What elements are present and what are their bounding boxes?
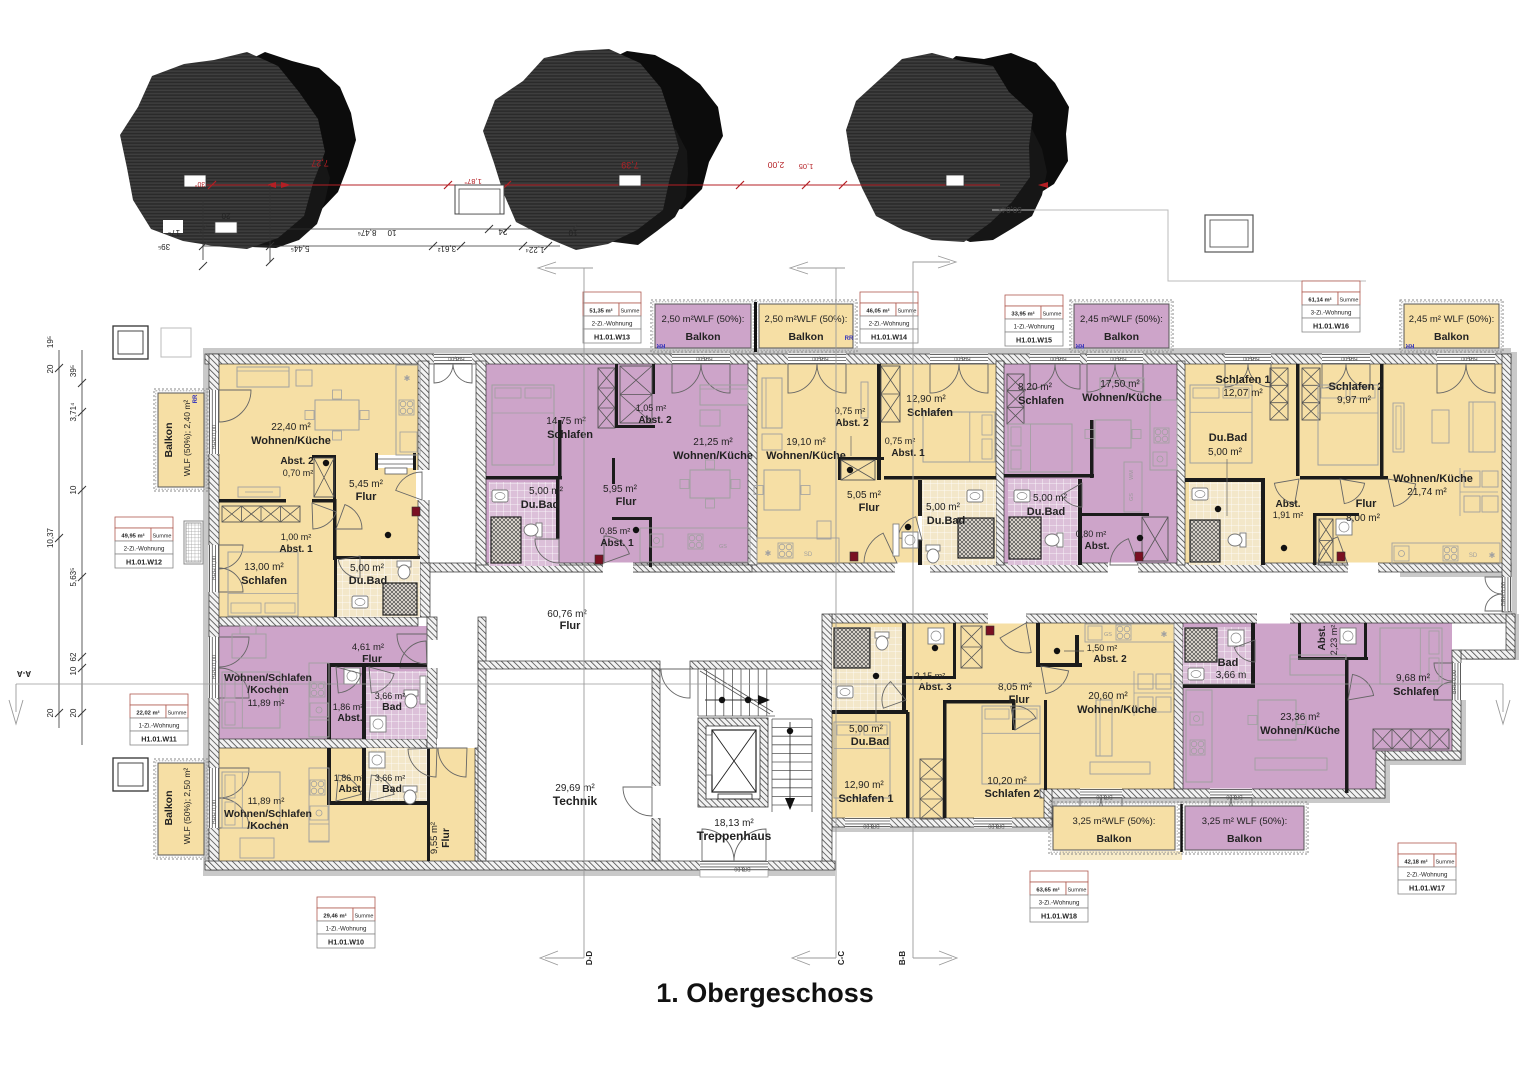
svg-text:RR: RR — [845, 336, 854, 342]
svg-text:BRH 0,00: BRH 0,00 — [1452, 670, 1458, 694]
svg-text:23,36 m²: 23,36 m² — [1280, 712, 1320, 723]
svg-text:1-Zi.-Wohnung: 1-Zi.-Wohnung — [139, 723, 180, 730]
svg-text:20: 20 — [69, 708, 78, 717]
svg-text:9,68 m²: 9,68 m² — [1396, 673, 1431, 684]
svg-text:Wohnen/Schlafen: Wohnen/Schlafen — [224, 808, 312, 820]
svg-text:Wohnen/Schlafen: Wohnen/Schlafen — [224, 672, 312, 684]
svg-text:BRH 0,00: BRH 0,00 — [212, 556, 218, 580]
svg-text:Abst.: Abst. — [1317, 625, 1328, 650]
svg-text:11,89 m²: 11,89 m² — [248, 698, 285, 709]
svg-text:21,74 m²: 21,74 m² — [1407, 487, 1447, 498]
svg-text:Balkon: Balkon — [1227, 833, 1262, 845]
svg-text:Flur: Flur — [859, 502, 880, 514]
svg-text:1. Obergeschoss: 1. Obergeschoss — [656, 978, 874, 1008]
svg-text:3,61²: 3,61² — [438, 244, 457, 253]
svg-text:1,00 m²: 1,00 m² — [281, 532, 312, 542]
svg-text:2,50 m²WLF (50%):: 2,50 m²WLF (50%): — [662, 314, 745, 325]
svg-text:1,86 m²: 1,86 m² — [334, 773, 365, 783]
svg-text:Wohnen/Küche: Wohnen/Küche — [1393, 473, 1473, 485]
svg-text:H1.01.W17: H1.01.W17 — [1409, 884, 1445, 893]
svg-text:H1.01.W11: H1.01.W11 — [141, 735, 177, 744]
svg-text:1,50 m²: 1,50 m² — [1087, 643, 1118, 653]
svg-text:3,25 m² WLF (50%):: 3,25 m² WLF (50%): — [1202, 816, 1288, 827]
svg-text:0,00: 0,00 — [812, 355, 823, 361]
svg-text:BRH 0,00: BRH 0,00 — [212, 655, 218, 679]
svg-text:BRH 0,00: BRH 0,00 — [212, 425, 218, 449]
svg-text:5,00 m²: 5,00 m² — [849, 724, 884, 735]
svg-text:Abst. 1: Abst. 1 — [891, 448, 925, 459]
svg-text:Balkon: Balkon — [1096, 833, 1131, 845]
svg-text:Abst.: Abst. — [338, 713, 363, 724]
svg-text:2,45 m² WLF (50%):: 2,45 m² WLF (50%): — [1409, 314, 1495, 325]
svg-text:3,66 m²: 3,66 m² — [375, 773, 406, 783]
svg-text:BRH 0,00: BRH 0,00 — [212, 800, 218, 824]
svg-text:Bad: Bad — [382, 701, 402, 713]
svg-text:0,00: 0,00 — [1050, 355, 1061, 361]
svg-text:RR: RR — [1075, 342, 1084, 348]
svg-text:3-Zi.-Wohnung: 3-Zi.-Wohnung — [1039, 900, 1080, 907]
svg-text:29,46 m²: 29,46 m² — [323, 913, 346, 920]
svg-text:0,00: 0,00 — [988, 823, 999, 829]
svg-text:Flur: Flur — [362, 653, 382, 665]
svg-text:1,91 m²: 1,91 m² — [1273, 510, 1304, 520]
svg-text:✱: ✱ — [1161, 630, 1168, 639]
svg-text:0,70 m²: 0,70 m² — [283, 468, 314, 478]
svg-text:Abst. 2: Abst. 2 — [835, 418, 869, 429]
svg-text:Summe: Summe — [1436, 860, 1455, 866]
svg-text:10: 10 — [387, 228, 396, 237]
svg-text:20: 20 — [46, 364, 55, 373]
svg-text:9,97 m²: 9,97 m² — [1337, 395, 1372, 406]
svg-text:39⁵: 39⁵ — [158, 242, 170, 251]
svg-text:Schlafen 1: Schlafen 1 — [838, 793, 893, 805]
svg-text:18,13 m²: 18,13 m² — [714, 818, 754, 829]
svg-text:3,66 m²: 3,66 m² — [375, 691, 406, 701]
svg-text:C-C: C-C — [837, 951, 846, 965]
svg-text:BRH 0,00: BRH 0,00 — [1501, 582, 1507, 606]
svg-text:Flur: Flur — [356, 491, 377, 503]
svg-text:49,95 m²: 49,95 m² — [121, 533, 144, 540]
svg-text:5,45 m²: 5,45 m² — [349, 479, 384, 490]
svg-text:22,02 m²: 22,02 m² — [136, 710, 159, 717]
svg-text:3,66 m: 3,66 m — [1216, 670, 1247, 681]
svg-text:WM: WM — [1129, 470, 1135, 480]
svg-text:Flur: Flur — [1009, 694, 1030, 706]
svg-text:Balkon: Balkon — [788, 331, 823, 343]
svg-text:Schlafen: Schlafen — [547, 429, 593, 441]
svg-text:RR: RR — [1405, 342, 1414, 348]
svg-text:2,50 m²WLF (50%):: 2,50 m²WLF (50%): — [765, 314, 848, 325]
svg-text:8,47⁶: 8,47⁶ — [358, 228, 377, 237]
svg-text:✱: ✱ — [404, 374, 411, 383]
svg-text:1,05 m²: 1,05 m² — [636, 403, 667, 413]
svg-text:Summe: Summe — [1043, 312, 1062, 318]
svg-text:Abst. 1: Abst. 1 — [600, 538, 634, 549]
svg-text:12,90 m²: 12,90 m² — [844, 780, 884, 791]
svg-text:0,00: 0,00 — [448, 355, 459, 361]
svg-text:GS: GS — [1104, 632, 1112, 638]
svg-text:Balkon: Balkon — [163, 422, 175, 457]
svg-text:62: 62 — [69, 652, 78, 661]
svg-text:Summe: Summe — [898, 309, 917, 315]
svg-text:39⁵: 39⁵ — [69, 365, 78, 377]
svg-text:RR: RR — [193, 394, 199, 403]
svg-text:H1.01.W10: H1.01.W10 — [328, 938, 364, 947]
svg-text:✱: ✱ — [765, 549, 772, 558]
svg-text:61,14 m²: 61,14 m² — [1308, 297, 1331, 304]
svg-text:GS: GS — [719, 544, 727, 550]
svg-text:Schlafen: Schlafen — [1393, 686, 1439, 698]
svg-text:H1.01.W13: H1.01.W13 — [594, 333, 630, 342]
svg-text:Abst. 2: Abst. 2 — [638, 415, 672, 426]
svg-text:D-D: D-D — [585, 951, 594, 965]
svg-text:Wohnen/Küche: Wohnen/Küche — [673, 450, 753, 462]
svg-text:5,00 m²: 5,00 m² — [1033, 493, 1068, 504]
svg-text:Balkon: Balkon — [685, 331, 720, 343]
svg-text:Summe: Summe — [355, 914, 374, 920]
svg-text:10: 10 — [568, 228, 577, 237]
svg-text:0,80 m²: 0,80 m² — [1076, 529, 1107, 539]
svg-text:1,22⁴: 1,22⁴ — [525, 245, 545, 254]
svg-text:2,00: 2,00 — [767, 160, 784, 170]
svg-text:Schlafen 2: Schlafen 2 — [984, 788, 1039, 800]
svg-text:Wohnen/Küche: Wohnen/Küche — [1260, 725, 1340, 737]
svg-text:/Kochen: /Kochen — [247, 684, 288, 696]
svg-text:0,00: 0,00 — [734, 866, 745, 872]
svg-text:17⁵: 17⁵ — [168, 228, 180, 237]
svg-text:SD: SD — [1469, 553, 1478, 559]
svg-text:Balkon: Balkon — [163, 790, 175, 825]
svg-text:H1.01.W18: H1.01.W18 — [1041, 912, 1077, 921]
svg-text:5,95 m²: 5,95 m² — [603, 484, 638, 495]
svg-text:5,63⁵: 5,63⁵ — [69, 568, 78, 587]
svg-text:H1.01.W16: H1.01.W16 — [1313, 322, 1349, 331]
svg-text:20: 20 — [221, 211, 230, 220]
svg-text:9,55 m²: 9,55 m² — [429, 822, 440, 854]
svg-text:0,00: 0,00 — [1096, 794, 1107, 800]
svg-text:22,40 m²: 22,40 m² — [271, 422, 311, 433]
svg-text:✱: ✱ — [1489, 551, 1496, 560]
svg-text:0,00: 0,00 — [1461, 355, 1472, 361]
svg-text:SD: SD — [804, 552, 813, 558]
svg-text:2,23 m²: 2,23 m² — [1329, 625, 1339, 656]
svg-text:Summe: Summe — [621, 309, 640, 315]
svg-text:0,75 m²: 0,75 m² — [885, 436, 916, 446]
svg-text:Wohnen/Küche: Wohnen/Küche — [1082, 392, 1162, 404]
svg-text:2-Zi.-Wohnung: 2-Zi.-Wohnung — [1407, 872, 1448, 879]
svg-text:10: 10 — [69, 485, 78, 494]
svg-text:11,89 m²: 11,89 m² — [248, 796, 285, 807]
svg-text:Du.Bad: Du.Bad — [1209, 432, 1248, 444]
svg-text:7,39: 7,39 — [621, 160, 639, 170]
svg-text:30°: 30° — [195, 180, 206, 188]
svg-text:3-Zi.-Wohnung: 3-Zi.-Wohnung — [1311, 310, 1352, 317]
svg-text:Abst.: Abst. — [1085, 541, 1110, 552]
svg-text:Flur: Flur — [440, 828, 452, 848]
svg-text:12,07 m²: 12,07 m² — [1223, 388, 1263, 399]
svg-text:29,69 m²: 29,69 m² — [555, 783, 595, 794]
svg-text:60,76 m²: 60,76 m² — [547, 609, 587, 620]
svg-text:42,18 m²: 42,18 m² — [1404, 859, 1427, 866]
svg-text:14,75 m²: 14,75 m² — [546, 416, 586, 427]
svg-text:63,65 m²: 63,65 m² — [1036, 887, 1059, 894]
svg-text:46,05 m²: 46,05 m² — [866, 308, 889, 315]
svg-text:5,44⁵: 5,44⁵ — [291, 244, 310, 253]
svg-text:0,85 m²: 0,85 m² — [600, 526, 631, 536]
svg-text:Technik: Technik — [553, 794, 598, 808]
svg-text:Summe: Summe — [168, 711, 187, 717]
svg-text:8,20 m²: 8,20 m² — [1018, 382, 1053, 393]
svg-text:/Kochen: /Kochen — [247, 820, 288, 832]
svg-text:Summe: Summe — [1340, 298, 1359, 304]
svg-text:WLF (50%); 2,50 m²: WLF (50%); 2,50 m² — [182, 768, 192, 845]
svg-text:0,00: 0,00 — [954, 355, 965, 361]
svg-text:Schlafen: Schlafen — [241, 575, 287, 587]
svg-text:20: 20 — [46, 708, 55, 717]
svg-text:5,00 m²: 5,00 m² — [529, 486, 564, 497]
svg-text:0,00: 0,00 — [1226, 794, 1237, 800]
svg-text:WLF (50%); 2,40 m²: WLF (50%); 2,40 m² — [182, 400, 192, 477]
svg-text:0,75 m²: 0,75 m² — [835, 406, 866, 416]
svg-text:0,00: 0,00 — [696, 355, 707, 361]
svg-text:5,00 m²: 5,00 m² — [350, 563, 385, 574]
svg-text:19,10 m²: 19,10 m² — [786, 437, 826, 448]
svg-text:Bad: Bad — [1218, 657, 1239, 669]
svg-text:Wohnen/Küche: Wohnen/Küche — [766, 450, 846, 462]
svg-text:Abst.: Abst. — [1276, 499, 1301, 510]
svg-text:19⁵: 19⁵ — [46, 336, 55, 348]
svg-text:33,95 m²: 33,95 m² — [1011, 311, 1034, 318]
svg-text:12,90 m²: 12,90 m² — [906, 394, 946, 405]
svg-text:1,05: 1,05 — [799, 162, 814, 171]
svg-text:0,00: 0,00 — [1341, 355, 1352, 361]
svg-text:2,15 m²: 2,15 m² — [915, 671, 946, 681]
svg-text:Balkon: Balkon — [1104, 331, 1139, 343]
svg-text:Abst. 2: Abst. 2 — [1093, 654, 1127, 665]
svg-text:Du.Bad: Du.Bad — [349, 575, 388, 587]
svg-text:3,71⁴: 3,71⁴ — [69, 402, 78, 422]
svg-text:Du.Bad: Du.Bad — [521, 499, 560, 511]
svg-text:8,00 m²: 8,00 m² — [1346, 513, 1381, 524]
svg-text:51,35 m²: 51,35 m² — [589, 308, 612, 315]
svg-text:Summe: Summe — [1068, 888, 1087, 894]
svg-text:2,45 m²WLF (50%):: 2,45 m²WLF (50%): — [1080, 314, 1163, 325]
svg-text:Bad: Bad — [382, 783, 402, 795]
svg-text:Treppenhaus: Treppenhaus — [697, 829, 772, 843]
svg-text:1-Zi.-Wohnung: 1-Zi.-Wohnung — [326, 926, 367, 933]
svg-text:Schlafen: Schlafen — [907, 407, 953, 419]
svg-text:Flur: Flur — [560, 620, 581, 632]
svg-text:GS: GS — [1129, 493, 1135, 501]
svg-text:1,86 m²: 1,86 m² — [333, 702, 364, 712]
svg-text:Schlafen 1: Schlafen 1 — [1215, 374, 1270, 386]
svg-text:H1.01.W15: H1.01.W15 — [1016, 336, 1052, 345]
svg-text:Abst. 1: Abst. 1 — [279, 544, 313, 555]
svg-text:50,04⁴: 50,04⁴ — [998, 205, 1022, 214]
svg-text:Schlafen: Schlafen — [1018, 395, 1064, 407]
svg-text:13,00 m²: 13,00 m² — [244, 562, 284, 573]
svg-text:0,00: 0,00 — [1243, 355, 1254, 361]
svg-text:0,00: 0,00 — [863, 823, 874, 829]
svg-text:10,37: 10,37 — [46, 527, 55, 548]
svg-text:H1.01.W12: H1.01.W12 — [126, 558, 162, 567]
svg-text:5,05 m²: 5,05 m² — [847, 490, 882, 501]
svg-text:10: 10 — [69, 666, 78, 675]
svg-text:Schlafen 2: Schlafen 2 — [1328, 381, 1383, 393]
svg-text:2-Zi.-Wohnung: 2-Zi.-Wohnung — [124, 546, 165, 553]
svg-text:17,50 m²: 17,50 m² — [1100, 379, 1140, 390]
svg-text:2-Zi.-Wohnung: 2-Zi.-Wohnung — [592, 321, 633, 328]
svg-text:24: 24 — [498, 227, 507, 236]
svg-text:Wohnen/Küche: Wohnen/Küche — [1077, 704, 1157, 716]
svg-text:RR: RR — [656, 342, 665, 348]
svg-text:20,60 m²: 20,60 m² — [1088, 691, 1128, 702]
svg-text:Du.Bad: Du.Bad — [1027, 506, 1066, 518]
svg-text:Abst. 2: Abst. 2 — [280, 456, 314, 467]
svg-text:2-Zi.-Wohnung: 2-Zi.-Wohnung — [869, 321, 910, 328]
svg-text:Flur: Flur — [616, 496, 637, 508]
svg-text:Du.Bad: Du.Bad — [851, 736, 890, 748]
svg-text:A-A: A-A — [17, 669, 31, 678]
svg-text:Balkon: Balkon — [1434, 331, 1469, 343]
svg-text:Du.Bad: Du.Bad — [927, 515, 966, 527]
svg-text:10,20 m²: 10,20 m² — [987, 776, 1027, 787]
svg-text:B-B: B-B — [898, 951, 907, 965]
svg-text:7,27: 7,27 — [311, 158, 329, 168]
svg-text:Flur: Flur — [1356, 498, 1377, 510]
svg-text:H1.01.W14: H1.01.W14 — [871, 333, 907, 342]
svg-text:1-Zi.-Wohnung: 1-Zi.-Wohnung — [1014, 324, 1055, 331]
svg-text:3,25 m²WLF (50%):: 3,25 m²WLF (50%): — [1073, 816, 1156, 827]
svg-text:5,00 m²: 5,00 m² — [1208, 447, 1243, 458]
svg-text:4,61 m²: 4,61 m² — [352, 642, 384, 653]
svg-text:Wohnen/Küche: Wohnen/Küche — [251, 435, 331, 447]
svg-text:Abst.: Abst. — [339, 784, 364, 795]
svg-text:21,25 m²: 21,25 m² — [693, 437, 733, 448]
svg-text:Summe: Summe — [153, 534, 172, 540]
svg-text:0,00: 0,00 — [1110, 355, 1121, 361]
svg-text:5,00 m²: 5,00 m² — [926, 502, 961, 513]
